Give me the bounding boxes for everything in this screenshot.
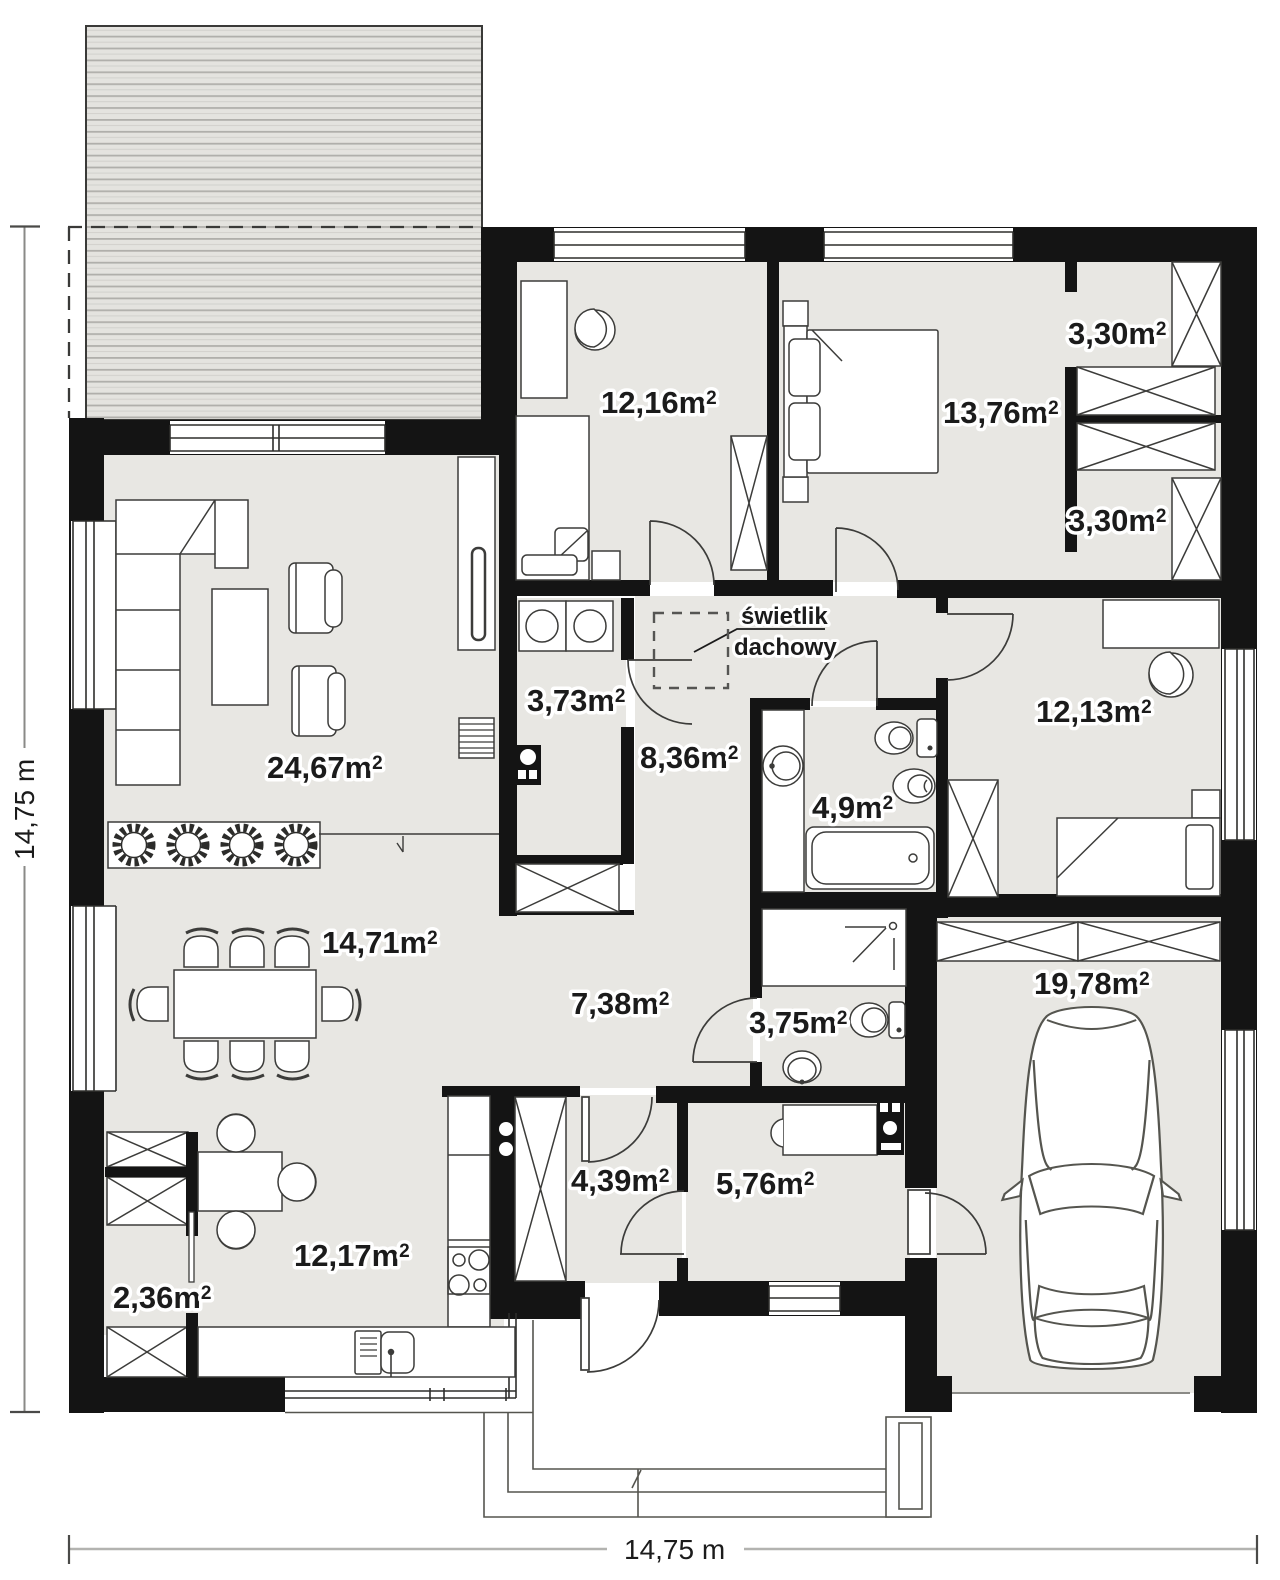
- svg-text:dachowy: dachowy: [734, 634, 837, 661]
- svg-text:14,75 m: 14,75 m: [9, 759, 40, 860]
- svg-text:4,39m2: 4,39m2: [571, 1163, 669, 1198]
- svg-text:7,38m2: 7,38m2: [571, 986, 669, 1021]
- svg-text:świetlik: świetlik: [741, 603, 828, 630]
- svg-text:3,73m2: 3,73m2: [527, 683, 625, 718]
- svg-text:8,36m2: 8,36m2: [640, 740, 738, 775]
- svg-text:3,30m2: 3,30m2: [1068, 316, 1166, 351]
- svg-text:3,75m2: 3,75m2: [749, 1005, 847, 1040]
- svg-text:24,67m2: 24,67m2: [267, 750, 383, 785]
- svg-text:12,16m2: 12,16m2: [601, 385, 717, 420]
- svg-text:5,76m2: 5,76m2: [716, 1166, 814, 1201]
- svg-text:14,71m2: 14,71m2: [322, 925, 438, 960]
- svg-text:4,9m2: 4,9m2: [812, 790, 893, 825]
- svg-text:2,36m2: 2,36m2: [113, 1280, 211, 1315]
- svg-text:14,75 m: 14,75 m: [624, 1534, 725, 1565]
- svg-text:13,76m2: 13,76m2: [943, 395, 1059, 430]
- svg-text:3,30m2: 3,30m2: [1068, 503, 1166, 538]
- svg-text:19,78m2: 19,78m2: [1034, 966, 1150, 1001]
- svg-text:12,17m2: 12,17m2: [294, 1238, 410, 1273]
- svg-text:12,13m2: 12,13m2: [1036, 694, 1152, 729]
